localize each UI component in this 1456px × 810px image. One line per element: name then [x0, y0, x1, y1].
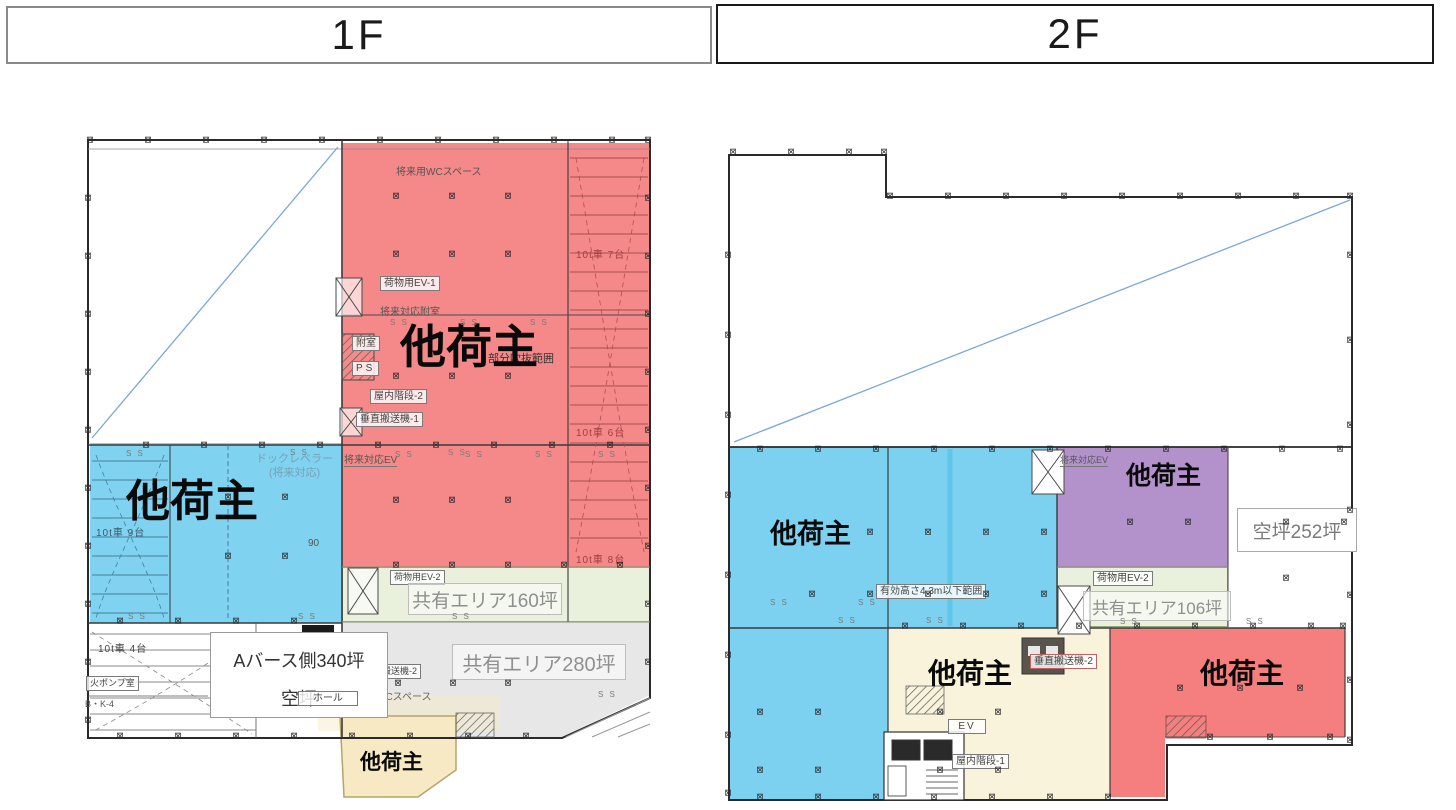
- column-marker-icon: ⊠: [1340, 518, 1348, 527]
- column-marker-icon: ⊠: [448, 561, 456, 570]
- f1-label-stairs2: 屋内階段-2: [370, 389, 427, 404]
- column-marker-icon: ⊠: [448, 192, 456, 201]
- ss-marker: S S: [460, 318, 479, 327]
- column-marker-icon: ⊠: [449, 679, 457, 688]
- column-marker-icon: ⊠: [504, 192, 512, 201]
- column-marker-icon: ⊠: [348, 732, 356, 741]
- column-marker-icon: ⊠: [504, 372, 512, 381]
- column-marker-icon: ⊠: [1176, 192, 1184, 201]
- f1-label-fire-pump: 火ポンプ室: [86, 676, 139, 691]
- column-marker-icon: ⊠: [1278, 445, 1286, 454]
- column-marker-icon: ⊠: [724, 411, 732, 420]
- ss-marker: S S: [535, 450, 554, 459]
- ss-marker: S S: [395, 450, 414, 459]
- column-marker-icon: ⊠: [1346, 192, 1354, 201]
- column-marker-icon: ⊠: [258, 441, 266, 450]
- column-marker-icon: ⊠: [814, 708, 822, 717]
- column-marker-icon: ⊠: [756, 445, 764, 454]
- column-marker-icon: ⊠: [729, 148, 737, 157]
- column-marker-icon: ⊠: [116, 732, 124, 741]
- ss-marker: S S: [598, 690, 617, 699]
- column-marker-icon: ⊠: [644, 600, 652, 609]
- column-marker-icon: ⊠: [936, 766, 944, 775]
- column-marker-icon: ⊠: [644, 252, 652, 261]
- ss-marker: S S: [465, 450, 484, 459]
- f1-label-cargo-ev1: 荷物用EV-1: [380, 276, 440, 291]
- f1-vacant-box-line1: Aバース側340坪: [211, 647, 387, 673]
- ss-marker: S S: [298, 612, 317, 621]
- column-marker-icon: ⊠: [260, 136, 268, 145]
- ss-marker: S S: [1120, 617, 1139, 626]
- f2-label-ev: EV: [948, 719, 986, 734]
- f1-shared-area-160-label: 共有エリア160坪: [408, 583, 562, 615]
- column-marker-icon: ⊠: [1002, 192, 1010, 201]
- column-marker-icon: ⊠: [448, 372, 456, 381]
- column-marker-icon: ⊠: [232, 732, 240, 741]
- ss-marker: S S: [926, 616, 945, 625]
- column-marker-icon: ⊠: [281, 493, 289, 502]
- column-marker-icon: ⊠: [504, 250, 512, 259]
- column-marker-icon: ⊠: [1346, 591, 1354, 600]
- ss-marker: S S: [1246, 617, 1265, 626]
- column-marker-icon: ⊠: [84, 310, 92, 319]
- column-marker-icon: ⊠: [522, 732, 530, 741]
- column-marker-icon: ⊠: [84, 600, 92, 609]
- column-marker-icon: ⊠: [1046, 793, 1054, 802]
- column-marker-icon: ⊠: [1060, 192, 1068, 201]
- column-marker-icon: ⊠: [644, 194, 652, 203]
- column-marker-icon: ⊠: [550, 136, 558, 145]
- column-marker-icon: ⊠: [492, 136, 500, 145]
- column-marker-icon: ⊠: [924, 528, 932, 537]
- column-marker-icon: ⊠: [290, 617, 298, 626]
- column-marker-icon: ⊠: [504, 496, 512, 505]
- column-marker-icon: ⊠: [724, 789, 732, 798]
- column-marker-icon: ⊠: [959, 622, 967, 631]
- column-marker-icon: ⊠: [724, 331, 732, 340]
- f1-label-future-wc: 将来用WCスペース: [396, 163, 481, 178]
- f1-label-vconv1: 垂直搬送機-1: [356, 412, 423, 427]
- column-marker-icon: ⊠: [724, 491, 732, 500]
- column-marker-icon: ⊠: [504, 561, 512, 570]
- column-marker-icon: ⊠: [406, 732, 414, 741]
- column-marker-icon: ⊠: [814, 766, 822, 775]
- column-marker-icon: ⊠: [174, 732, 182, 741]
- f1-label-trucks-7: 10t車 7台: [576, 246, 625, 261]
- column-marker-icon: ⊠: [1234, 192, 1242, 201]
- column-marker-icon: ⊠: [1346, 676, 1354, 685]
- column-marker-icon: ⊠: [448, 250, 456, 259]
- column-marker-icon: ⊠: [644, 658, 652, 667]
- column-marker-icon: ⊠: [1346, 421, 1354, 430]
- column-marker-icon: ⊠: [644, 484, 652, 493]
- f2-tenant-purple-label: 他荷主: [1126, 464, 1201, 489]
- column-marker-icon: ⊠: [224, 552, 232, 561]
- column-marker-icon: ⊠: [1339, 622, 1347, 631]
- column-marker-icon: ⊠: [756, 708, 764, 717]
- column-marker-icon: ⊠: [374, 441, 382, 450]
- ss-marker: S S: [598, 450, 617, 459]
- column-marker-icon: ⊠: [944, 192, 952, 201]
- column-marker-icon: ⊠: [202, 136, 210, 145]
- column-marker-icon: ⊠: [1346, 336, 1354, 345]
- column-marker-icon: ⊠: [376, 136, 384, 145]
- column-marker-icon: ⊠: [724, 251, 732, 260]
- column-marker-icon: ⊠: [724, 731, 732, 740]
- column-marker-icon: ⊠: [1040, 590, 1048, 599]
- f1-label-annex: 附室: [352, 336, 380, 351]
- column-marker-icon: ⊠: [616, 561, 624, 570]
- column-marker-icon: ⊠: [1191, 622, 1199, 631]
- column-marker-icon: ⊠: [84, 484, 92, 493]
- column-marker-icon: ⊠: [901, 622, 909, 631]
- column-marker-icon: ⊠: [1336, 445, 1344, 454]
- column-marker-icon: ⊠: [930, 793, 938, 802]
- f1-label-bk4: B・K-4: [85, 697, 114, 710]
- column-marker-icon: ⊠: [644, 310, 652, 319]
- f1-label-trucks-9: 10t車 9台: [96, 524, 145, 539]
- f1-label-trucks-4: 10t車 4台: [98, 640, 147, 655]
- column-marker-icon: ⊠: [84, 252, 92, 261]
- column-marker-icon: ⊠: [924, 590, 932, 599]
- f2-label-vconv2: 垂直搬送機-2: [1030, 654, 1097, 669]
- column-marker-icon: ⊠: [86, 136, 94, 145]
- column-marker-icon: ⊠: [644, 426, 652, 435]
- column-marker-icon: ⊠: [174, 617, 182, 626]
- column-marker-icon: ⊠: [1326, 733, 1334, 742]
- column-marker-icon: ⊠: [224, 493, 232, 502]
- column-marker-icon: ⊠: [608, 136, 616, 145]
- column-marker-icon: ⊠: [1266, 733, 1274, 742]
- column-marker-icon: ⊠: [787, 148, 795, 157]
- column-marker-icon: ⊠: [982, 528, 990, 537]
- f2-tenant-cream-label: 他荷主: [928, 660, 1012, 688]
- f1-label-future-ev: 将来対応EV: [344, 451, 397, 467]
- column-marker-icon: ⊠: [392, 372, 400, 381]
- column-marker-icon: ⊠: [1040, 528, 1048, 537]
- column-marker-icon: ⊠: [1046, 445, 1054, 454]
- column-marker-icon: ⊠: [84, 542, 92, 551]
- column-marker-icon: ⊠: [490, 441, 498, 450]
- ss-marker: S S: [858, 598, 877, 607]
- column-marker-icon: ⊠: [808, 528, 816, 537]
- f2-shared-area-106-label: 共有エリア106坪: [1083, 591, 1231, 621]
- f2-ev-stair-symbols: [1032, 450, 1090, 634]
- f2-label-future-ev: 将来対応EV: [1060, 453, 1108, 467]
- column-marker-icon: ⊠: [560, 561, 568, 570]
- column-marker-icon: ⊠: [434, 136, 442, 145]
- column-marker-icon: ⊠: [1307, 622, 1315, 631]
- column-marker-icon: ⊠: [1184, 518, 1192, 527]
- column-marker-icon: ⊠: [994, 766, 1002, 775]
- column-marker-icon: ⊠: [1282, 574, 1290, 583]
- column-marker-icon: ⊠: [814, 793, 822, 802]
- column-marker-icon: ⊠: [724, 651, 732, 660]
- column-marker-icon: ⊠: [232, 617, 240, 626]
- f1-tenant-yellow-label: 他荷主: [360, 752, 423, 773]
- column-marker-icon: ⊠: [1118, 192, 1126, 201]
- column-marker-icon: ⊠: [1162, 445, 1170, 454]
- column-marker-icon: ⊠: [548, 441, 556, 450]
- column-marker-icon: ⊠: [1017, 622, 1025, 631]
- column-marker-icon: ⊠: [1346, 506, 1354, 515]
- f1-label-ps: PS: [352, 361, 379, 376]
- f1-tenant-red-label: 他荷主: [400, 324, 538, 370]
- column-marker-icon: ⊠: [200, 441, 208, 450]
- column-marker-icon: ⊠: [448, 496, 456, 505]
- column-marker-icon: ⊠: [316, 441, 324, 450]
- column-marker-icon: ⊠: [1236, 684, 1244, 693]
- f1-label-trucks-6: 10t車 6台: [576, 424, 625, 439]
- column-marker-icon: ⊠: [756, 793, 764, 802]
- f1-dock-leveler-line2: (将来対応): [256, 466, 333, 480]
- column-marker-icon: ⊠: [845, 148, 853, 157]
- column-marker-icon: ⊠: [756, 766, 764, 775]
- column-marker-icon: ⊠: [808, 590, 816, 599]
- column-marker-icon: ⊠: [1296, 684, 1304, 693]
- f1-shared-area-280-label: 共有エリア280坪: [452, 644, 626, 680]
- column-marker-icon: ⊠: [281, 552, 289, 561]
- floorplan-page: 1F 2F: [0, 0, 1456, 810]
- column-marker-icon: ⊠: [1176, 684, 1184, 693]
- column-marker-icon: ⊠: [84, 716, 92, 725]
- column-marker-icon: ⊠: [1282, 518, 1290, 527]
- column-marker-icon: ⊠: [724, 571, 732, 580]
- ss-marker: S S: [770, 598, 789, 607]
- column-marker-icon: ⊠: [988, 793, 996, 802]
- column-marker-icon: ⊠: [930, 445, 938, 454]
- column-marker-icon: ⊠: [1346, 251, 1354, 260]
- f1-tenant-blue-label: 他荷主: [126, 480, 258, 524]
- column-marker-icon: ⊠: [392, 561, 400, 570]
- column-marker-icon: ⊠: [1220, 445, 1228, 454]
- f1-label-future-annex: 将来対応附室: [380, 303, 440, 318]
- column-marker-icon: ⊠: [1206, 733, 1214, 742]
- column-marker-icon: ⊠: [1292, 192, 1300, 201]
- ss-marker: S S: [390, 318, 409, 327]
- column-marker-icon: ⊠: [318, 136, 326, 145]
- column-marker-icon: ⊠: [872, 793, 880, 802]
- column-marker-icon: ⊠: [432, 441, 440, 450]
- f1-label-hall: ホール: [298, 691, 358, 706]
- column-marker-icon: ⊠: [464, 732, 472, 741]
- ss-marker: S S: [290, 448, 309, 457]
- column-marker-icon: ⊠: [84, 426, 92, 435]
- column-marker-icon: ⊠: [392, 250, 400, 259]
- column-marker-icon: ⊠: [1346, 736, 1354, 745]
- column-marker-icon: ⊠: [116, 617, 124, 626]
- column-marker-icon: ⊠: [84, 194, 92, 203]
- column-marker-icon: ⊠: [606, 441, 614, 450]
- column-marker-icon: ⊠: [886, 192, 894, 201]
- column-marker-icon: ⊠: [394, 679, 402, 688]
- column-marker-icon: ⊠: [84, 368, 92, 377]
- column-marker-icon: ⊠: [392, 192, 400, 201]
- column-marker-icon: ⊠: [936, 708, 944, 717]
- f1-label-dim-90: 90: [308, 538, 319, 549]
- ss-marker: S S: [128, 612, 147, 621]
- column-marker-icon: ⊠: [290, 732, 298, 741]
- column-marker-icon: ⊠: [982, 590, 990, 599]
- column-marker-icon: ⊠: [644, 368, 652, 377]
- f2-label-cargo-ev2: 荷物用EV-2: [1093, 571, 1153, 586]
- column-marker-icon: ⊠: [814, 445, 822, 454]
- column-marker-icon: ⊠: [880, 148, 888, 157]
- column-marker-icon: ⊠: [144, 136, 152, 145]
- column-marker-icon: ⊠: [1104, 793, 1112, 802]
- column-marker-icon: ⊠: [644, 136, 652, 145]
- column-marker-icon: ⊠: [866, 528, 874, 537]
- column-marker-icon: ⊠: [872, 445, 880, 454]
- f2-vacant-252-box: 空坪252坪: [1237, 508, 1357, 552]
- column-marker-icon: ⊠: [504, 679, 512, 688]
- ss-marker: S S: [452, 612, 471, 621]
- column-marker-icon: ⊠: [1075, 622, 1083, 631]
- column-marker-icon: ⊠: [84, 658, 92, 667]
- column-marker-icon: ⊠: [392, 496, 400, 505]
- column-marker-icon: ⊠: [1126, 518, 1134, 527]
- column-marker-icon: ⊠: [1104, 445, 1112, 454]
- ss-marker: S S: [126, 449, 145, 458]
- ss-marker: S S: [530, 318, 549, 327]
- column-marker-icon: ⊠: [644, 542, 652, 551]
- column-marker-icon: ⊠: [988, 445, 996, 454]
- ss-marker: S S: [838, 616, 857, 625]
- column-marker-icon: ⊠: [994, 708, 1002, 717]
